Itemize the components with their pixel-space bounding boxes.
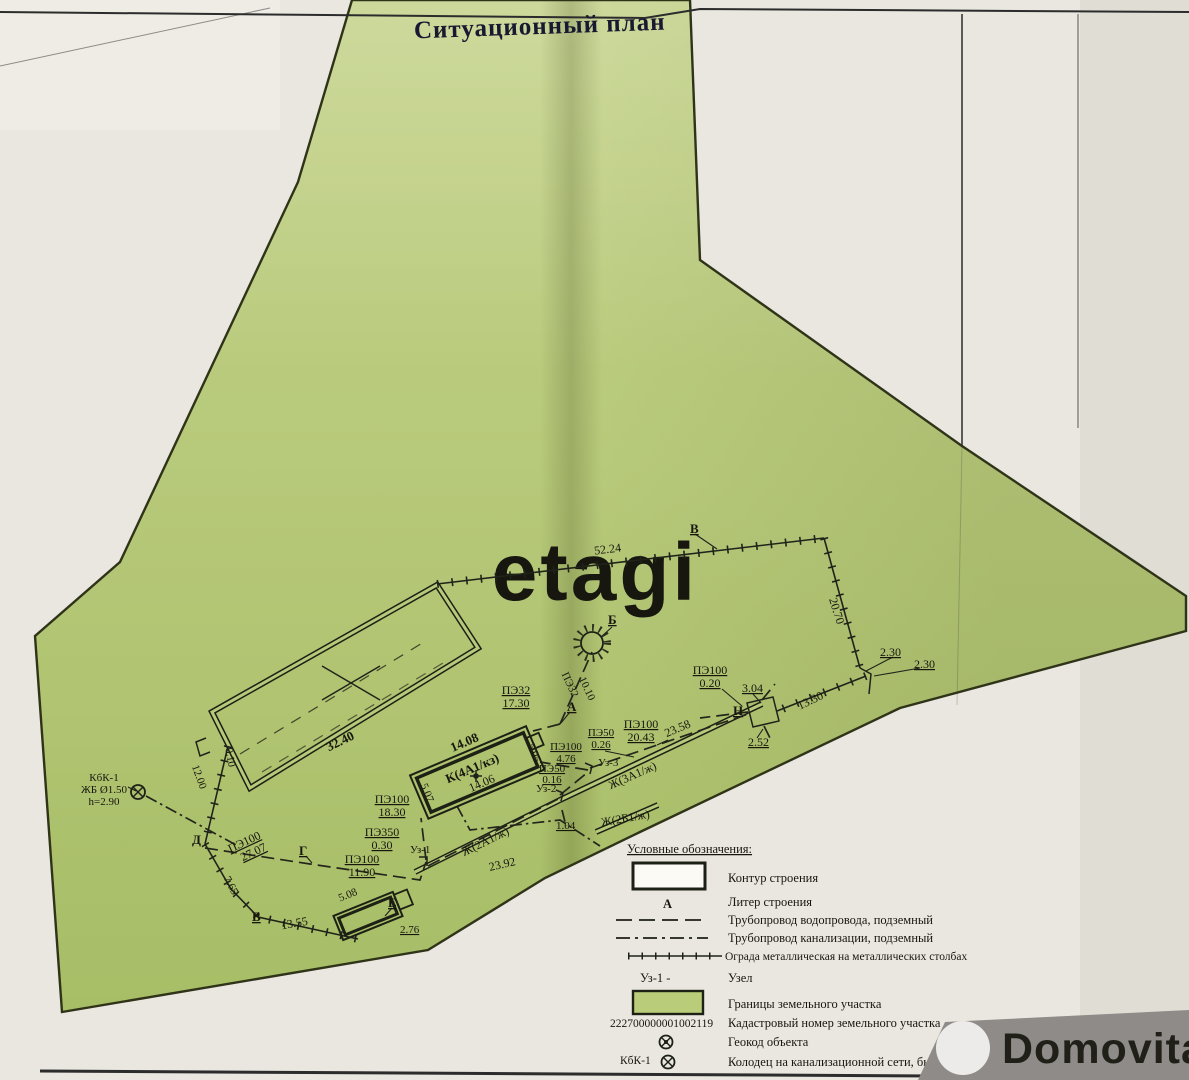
dim-3-04: 3.04 bbox=[742, 681, 763, 695]
svg-text:0.20: 0.20 bbox=[700, 676, 721, 690]
legend-symbol-parcel bbox=[633, 991, 703, 1014]
dim-2-30b: 2.30 bbox=[914, 657, 935, 671]
point-g: Г bbox=[299, 843, 307, 858]
pipe-label-pe100-2043: ПЭ100 20.43 bbox=[624, 717, 659, 744]
pipe-label-pe32-1730: ПЭ32 17.30 bbox=[502, 683, 531, 710]
svg-text:17.30: 17.30 bbox=[503, 696, 530, 710]
legend-item-contour: Контур строения bbox=[728, 871, 818, 885]
etagi-watermark: etagi bbox=[492, 527, 698, 618]
legend-symbol-building-outline bbox=[633, 863, 705, 889]
legend-heading: Условные обозначения: bbox=[627, 842, 752, 856]
svg-text:11.90: 11.90 bbox=[349, 865, 376, 879]
legend-item-sewer: Трубопровод канализации, подземный bbox=[728, 931, 933, 945]
pipe-label-pe100-1190: ПЭ100 11.90 bbox=[345, 852, 380, 879]
node-uz1: Уз-1 bbox=[410, 844, 430, 856]
dim-2-30a: 2.30 bbox=[880, 645, 901, 659]
domovita-watermark: Domovita bbox=[1002, 1025, 1189, 1073]
legend-item-uzel: Узел bbox=[728, 971, 752, 985]
point-a: А bbox=[567, 699, 577, 714]
legend-item-geocode: Геокод объекта bbox=[728, 1035, 809, 1049]
legend-item-parcel: Границы земельного участка bbox=[728, 997, 882, 1011]
dim-1-04: 1.04 bbox=[556, 820, 576, 832]
point-v-low: В bbox=[252, 909, 261, 924]
pipe-label-pe100-1830: ПЭ100 18.30 bbox=[375, 792, 410, 819]
scanned-situational-plan: etagi Ситуационный план bbox=[0, 0, 1189, 1080]
svg-text:ПЭ32: ПЭ32 bbox=[502, 683, 531, 697]
svg-text:ПЭ50: ПЭ50 bbox=[588, 727, 615, 739]
domovita-logo-icon bbox=[936, 1021, 990, 1075]
dim-2-52: 2.52 bbox=[748, 735, 769, 749]
legend-symbol-letter: А bbox=[663, 897, 672, 911]
legend-item-letter: Литер строения bbox=[728, 895, 812, 909]
legend-symbol-uzel: Уз-1 - bbox=[640, 971, 670, 985]
svg-text:ПЭ100: ПЭ100 bbox=[550, 741, 582, 753]
svg-text:18.30: 18.30 bbox=[379, 805, 406, 819]
legend-item-fence: Ограда металлическая на металлических ст… bbox=[725, 951, 967, 963]
svg-text:ПЭ100: ПЭ100 bbox=[693, 663, 728, 677]
legend-symbol-kbk: КбК-1 bbox=[620, 1055, 651, 1067]
svg-text:h=2.90: h=2.90 bbox=[89, 796, 120, 808]
point-v-top: В bbox=[690, 521, 699, 536]
legend-item-water: Трубопровод водопровода, подземный bbox=[728, 913, 933, 927]
point-d: Д bbox=[192, 832, 201, 847]
svg-text:ПЭ100: ПЭ100 bbox=[624, 717, 659, 731]
pipe-label-pe50-026: ПЭ50 0.26 bbox=[588, 727, 615, 751]
svg-text:ЖБ Ø1.50: ЖБ Ø1.50 bbox=[81, 784, 128, 796]
svg-text:ПЭ100: ПЭ100 bbox=[345, 852, 380, 866]
svg-text:ПЭ350: ПЭ350 bbox=[365, 825, 400, 839]
plan-canvas: etagi Ситуационный план bbox=[0, 0, 1189, 1080]
node-uz2: Уз-2 bbox=[536, 783, 556, 795]
svg-text:КбК-1: КбК-1 bbox=[89, 772, 118, 784]
dim-2-76: 2.76 bbox=[400, 924, 420, 936]
svg-text:0.30: 0.30 bbox=[372, 838, 393, 852]
point-e: Е bbox=[388, 895, 397, 910]
svg-text:ПЭ100: ПЭ100 bbox=[375, 792, 410, 806]
legend-item-cadastral: Кадастровый номер земельного участка bbox=[728, 1016, 941, 1030]
svg-text:0.26: 0.26 bbox=[591, 739, 611, 751]
legend-cadastral-number: 222700000001002119 bbox=[610, 1018, 713, 1030]
point-b: Б bbox=[608, 612, 617, 627]
point-n: Н bbox=[733, 703, 743, 718]
node-uz3: Уз-3 bbox=[598, 757, 619, 769]
svg-text:20.43: 20.43 bbox=[628, 730, 655, 744]
